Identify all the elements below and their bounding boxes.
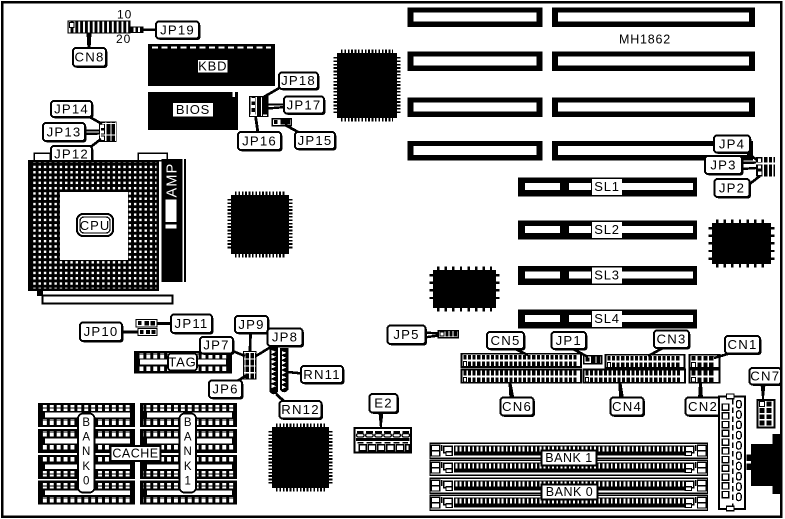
svg-text:CN6: CN6: [502, 399, 532, 414]
svg-text:JP10: JP10: [84, 324, 119, 339]
svg-text:BIOS: BIOS: [176, 102, 210, 117]
svg-text:10: 10: [117, 8, 132, 22]
svg-text:JP2: JP2: [719, 180, 745, 195]
svg-text:JP7: JP7: [203, 338, 229, 353]
svg-text:JP17: JP17: [287, 97, 322, 112]
svg-text:A: A: [82, 432, 90, 444]
svg-text:JP4: JP4: [719, 136, 745, 151]
svg-text:CPU: CPU: [80, 218, 110, 233]
svg-text:0: 0: [83, 475, 89, 487]
svg-text:JP13: JP13: [47, 124, 82, 139]
svg-text:SL3: SL3: [594, 268, 620, 283]
svg-text:TAG: TAG: [168, 355, 196, 370]
svg-text:1: 1: [184, 475, 190, 487]
svg-text:B: B: [82, 417, 90, 429]
svg-text:A: A: [184, 432, 192, 444]
svg-text:RN12: RN12: [281, 402, 320, 417]
svg-text:K: K: [184, 461, 192, 473]
svg-text:JP11: JP11: [175, 316, 209, 331]
svg-text:CACHE: CACHE: [112, 447, 158, 461]
svg-text:JP15: JP15: [298, 133, 333, 148]
svg-text:JP1: JP1: [556, 333, 582, 348]
svg-text:CN4: CN4: [612, 399, 642, 414]
svg-text:CN5: CN5: [491, 333, 521, 348]
svg-text:SL4: SL4: [594, 311, 620, 326]
svg-text:CN1: CN1: [728, 337, 758, 352]
svg-text:SL2: SL2: [594, 222, 620, 237]
svg-text:CN2: CN2: [688, 399, 718, 414]
svg-text:JP6: JP6: [212, 382, 238, 397]
svg-text:JP16: JP16: [242, 133, 277, 148]
svg-text:E2: E2: [374, 396, 393, 411]
svg-text:B: B: [184, 417, 192, 429]
svg-text:JP9: JP9: [238, 317, 264, 332]
svg-text:JP3: JP3: [710, 157, 736, 172]
svg-text:JP5: JP5: [393, 327, 419, 342]
svg-text:JP12: JP12: [54, 147, 89, 162]
svg-text:MH1862: MH1862: [619, 33, 671, 47]
svg-text:CN3: CN3: [657, 332, 687, 347]
svg-text:BANK 1: BANK 1: [545, 451, 592, 465]
svg-text:KBD: KBD: [198, 58, 227, 73]
svg-text:JP14: JP14: [54, 101, 89, 116]
svg-text:SL1: SL1: [594, 179, 620, 194]
svg-text:JP19: JP19: [160, 22, 195, 37]
svg-text:20: 20: [116, 32, 131, 46]
svg-text:CN7: CN7: [750, 369, 780, 384]
svg-text:N: N: [82, 446, 90, 458]
svg-text:RN11: RN11: [303, 367, 341, 382]
svg-text:BANK 0: BANK 0: [546, 485, 593, 499]
svg-text:AMP: AMP: [165, 162, 181, 197]
svg-text:CN8: CN8: [75, 50, 105, 65]
svg-text:K: K: [82, 461, 90, 473]
svg-text:N: N: [184, 446, 192, 458]
svg-text:JP18: JP18: [281, 73, 316, 88]
svg-text:JP8: JP8: [272, 330, 298, 345]
